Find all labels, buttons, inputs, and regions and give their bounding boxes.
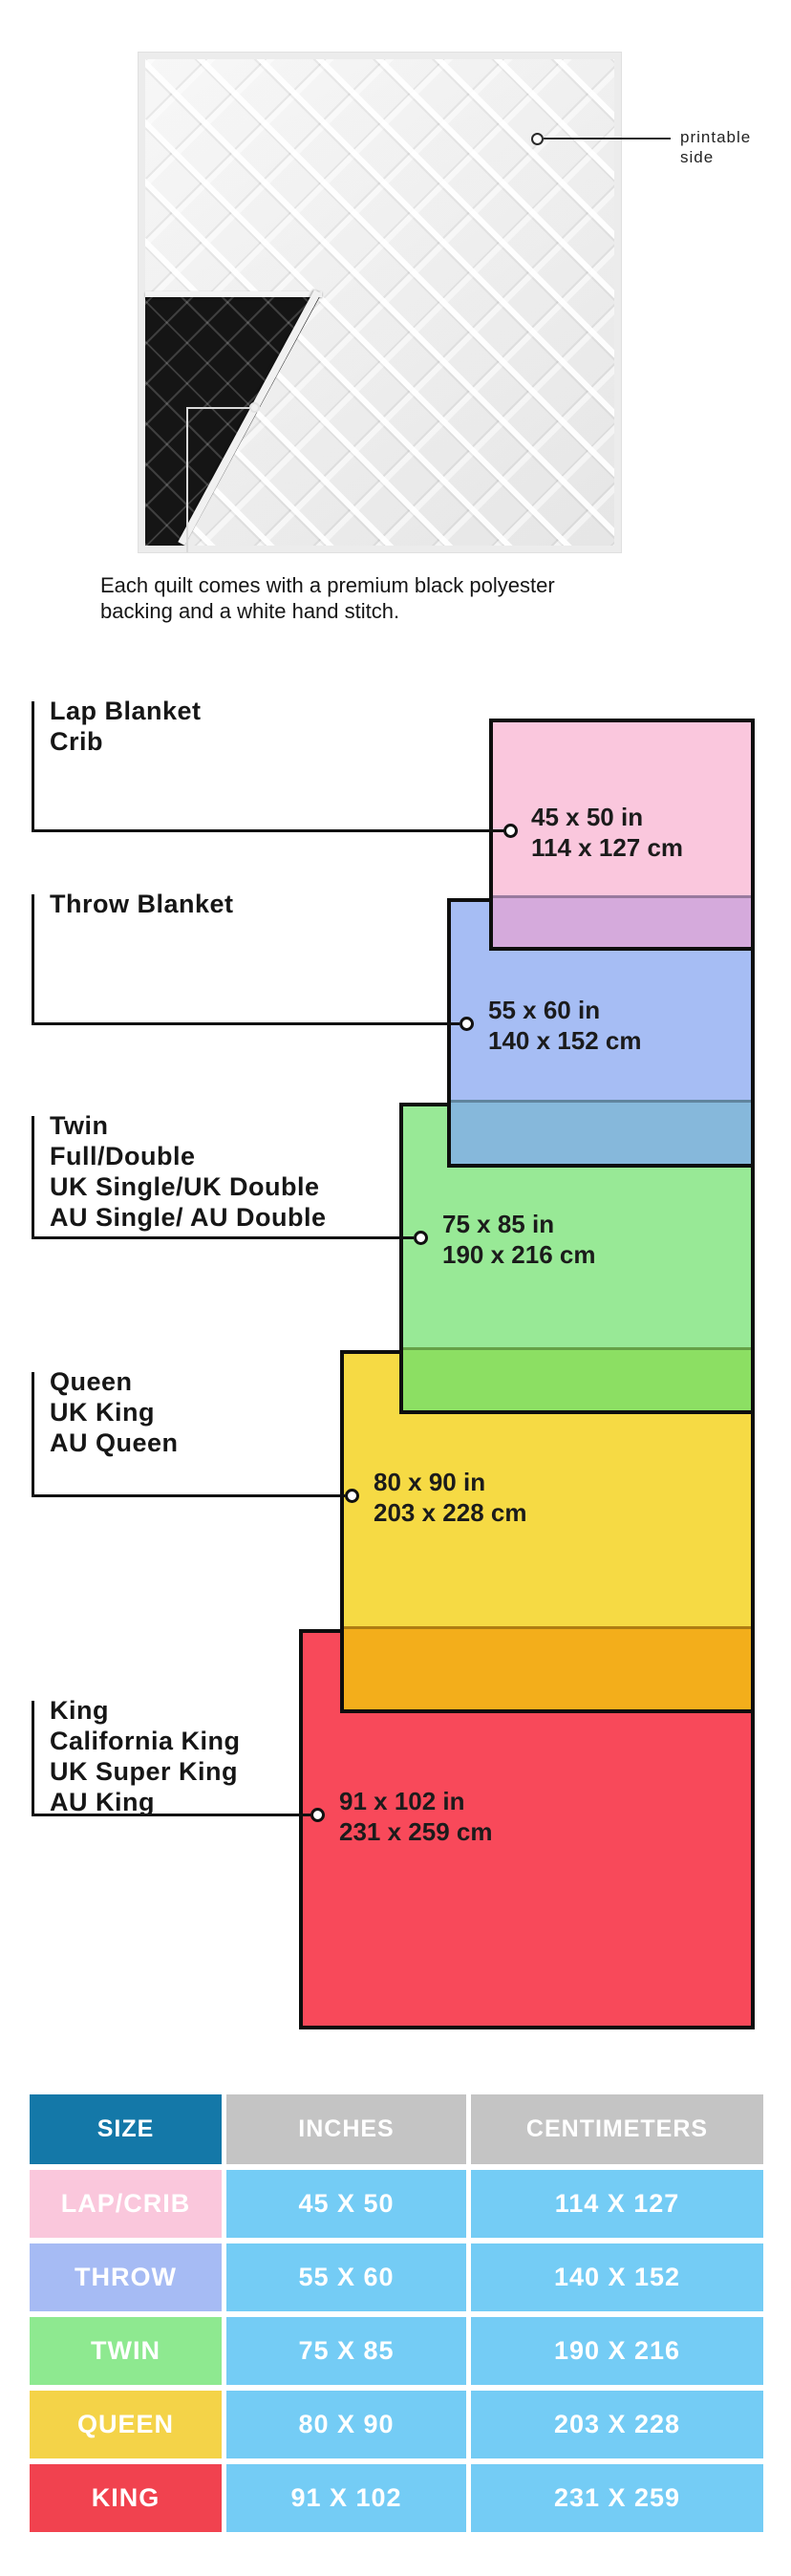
table-row-twin: TWIN 75 X 85 190 X 216 [30, 2317, 763, 2385]
dimensions-lap-cm: 114 x 127 cm [531, 832, 683, 863]
leader-vertical-twin [32, 1116, 34, 1239]
table-header-row: SIZE INCHES CENTIMETERS [30, 2094, 763, 2164]
table-row-lap-crib: LAP/CRIB 45 X 50 114 X 127 [30, 2170, 763, 2238]
label-twin-line1: Twin [50, 1110, 327, 1141]
printable-side-leader-line [544, 138, 671, 140]
label-twin-line4: AU Single/ AU Double [50, 1202, 327, 1233]
table-row-king: KING 91 X 102 231 X 259 [30, 2464, 763, 2532]
dimensions-queen: 80 x 90 in 203 x 228 cm [374, 1467, 526, 1528]
overlap-band-throw-twin [451, 1100, 751, 1164]
label-twin-line2: Full/Double [50, 1141, 327, 1171]
label-queen-line3: AU Queen [50, 1428, 179, 1458]
table-cell-size: TWIN [30, 2317, 222, 2385]
dimensions-king-inches: 91 x 102 in [339, 1786, 492, 1816]
table-cell-inches: 80 X 90 [226, 2391, 466, 2458]
leader-dot-lap-icon [503, 824, 518, 838]
dimensions-queen-inches: 80 x 90 in [374, 1467, 526, 1497]
table-cell-size: THROW [30, 2243, 222, 2311]
table-row-queen: QUEEN 80 X 90 203 X 228 [30, 2391, 763, 2458]
printable-side-callout-dot-icon [531, 133, 544, 145]
label-king-line4: AU King [50, 1787, 241, 1817]
table-header-size: SIZE [30, 2094, 222, 2164]
table-cell-size: QUEEN [30, 2391, 222, 2458]
dimensions-throw-cm: 140 x 152 cm [488, 1025, 641, 1056]
dimensions-king-cm: 231 x 259 cm [339, 1816, 492, 1847]
dimensions-twin: 75 x 85 in 190 x 216 cm [442, 1209, 595, 1270]
label-lap-line1: Lap Blanket [50, 696, 202, 726]
leader-vertical-throw [32, 894, 34, 1025]
printable-side-label-line1: printable [680, 127, 751, 147]
label-twin: Twin Full/Double UK Single/UK Double AU … [50, 1110, 327, 1233]
backing-callout-dot-icon [249, 402, 260, 413]
table-cell-centimeters: 231 X 259 [471, 2464, 763, 2532]
printable-side-label-line2: side [680, 147, 751, 167]
leader-dot-throw-icon [460, 1017, 474, 1031]
size-table: SIZE INCHES CENTIMETERS LAP/CRIB 45 X 50… [30, 2094, 763, 2532]
quilt-caption-line1: Each quilt comes with a premium black po… [100, 572, 731, 598]
table-row-throw: THROW 55 X 60 140 X 152 [30, 2243, 763, 2311]
quilt-photo [139, 53, 621, 552]
quilt-size-guide-page: printable side Each quilt comes with a p… [0, 0, 791, 2576]
label-king-line2: California King [50, 1726, 241, 1756]
leader-horizontal-twin [32, 1236, 414, 1239]
printable-side-label: printable side [680, 127, 751, 167]
table-cell-inches: 55 X 60 [226, 2243, 466, 2311]
leader-vertical-king [32, 1701, 34, 1816]
label-lap-crib: Lap Blanket Crib [50, 696, 202, 757]
table-cell-centimeters: 203 X 228 [471, 2391, 763, 2458]
dimensions-queen-cm: 203 x 228 cm [374, 1497, 526, 1528]
leader-dot-king-icon [310, 1808, 325, 1822]
table-cell-centimeters: 190 X 216 [471, 2317, 763, 2385]
label-king: King California King UK Super King AU Ki… [50, 1695, 241, 1817]
leader-horizontal-throw [32, 1022, 460, 1025]
leader-dot-queen-icon [345, 1489, 359, 1503]
dimensions-lap: 45 x 50 in 114 x 127 cm [531, 802, 683, 863]
table-header-centimeters: CENTIMETERS [471, 2094, 763, 2164]
label-throw: Throw Blanket [50, 889, 234, 919]
leader-vertical-queen [32, 1372, 34, 1497]
dimensions-twin-cm: 190 x 216 cm [442, 1239, 595, 1270]
label-throw-line1: Throw Blanket [50, 889, 234, 919]
table-header-inches: INCHES [226, 2094, 466, 2164]
label-king-line1: King [50, 1695, 241, 1726]
label-queen: Queen UK King AU Queen [50, 1366, 179, 1458]
overlap-band-twin-queen [403, 1347, 751, 1410]
label-twin-line3: UK Single/UK Double [50, 1171, 327, 1202]
quilt-caption-line2: backing and a white hand stitch. [100, 598, 731, 624]
table-cell-centimeters: 140 X 152 [471, 2243, 763, 2311]
label-queen-line2: UK King [50, 1397, 179, 1428]
fold-binding-top [145, 291, 322, 297]
leader-horizontal-queen [32, 1494, 345, 1497]
dimensions-lap-inches: 45 x 50 in [531, 802, 683, 832]
table-cell-size: LAP/CRIB [30, 2170, 222, 2238]
overlap-band-queen-king [344, 1626, 751, 1709]
leader-vertical-lap [32, 701, 34, 832]
quilt-caption: Each quilt comes with a premium black po… [100, 572, 731, 624]
table-cell-size: KING [30, 2464, 222, 2532]
dimensions-king: 91 x 102 in 231 x 259 cm [339, 1786, 492, 1847]
dimensions-throw-inches: 55 x 60 in [488, 995, 641, 1025]
label-king-line3: UK Super King [50, 1756, 241, 1787]
label-lap-line2: Crib [50, 726, 202, 757]
backing-leader-line-horizontal [186, 407, 249, 409]
table-cell-inches: 75 X 85 [226, 2317, 466, 2385]
backing-leader-line-vertical [186, 407, 188, 552]
table-cell-inches: 45 X 50 [226, 2170, 466, 2238]
table-cell-centimeters: 114 X 127 [471, 2170, 763, 2238]
leader-horizontal-lap [32, 829, 504, 832]
dimensions-twin-inches: 75 x 85 in [442, 1209, 595, 1239]
table-cell-inches: 91 X 102 [226, 2464, 466, 2532]
overlap-band-lap-throw [493, 895, 751, 947]
label-queen-line1: Queen [50, 1366, 179, 1397]
dimensions-throw: 55 x 60 in 140 x 152 cm [488, 995, 641, 1056]
leader-dot-twin-icon [414, 1231, 428, 1245]
